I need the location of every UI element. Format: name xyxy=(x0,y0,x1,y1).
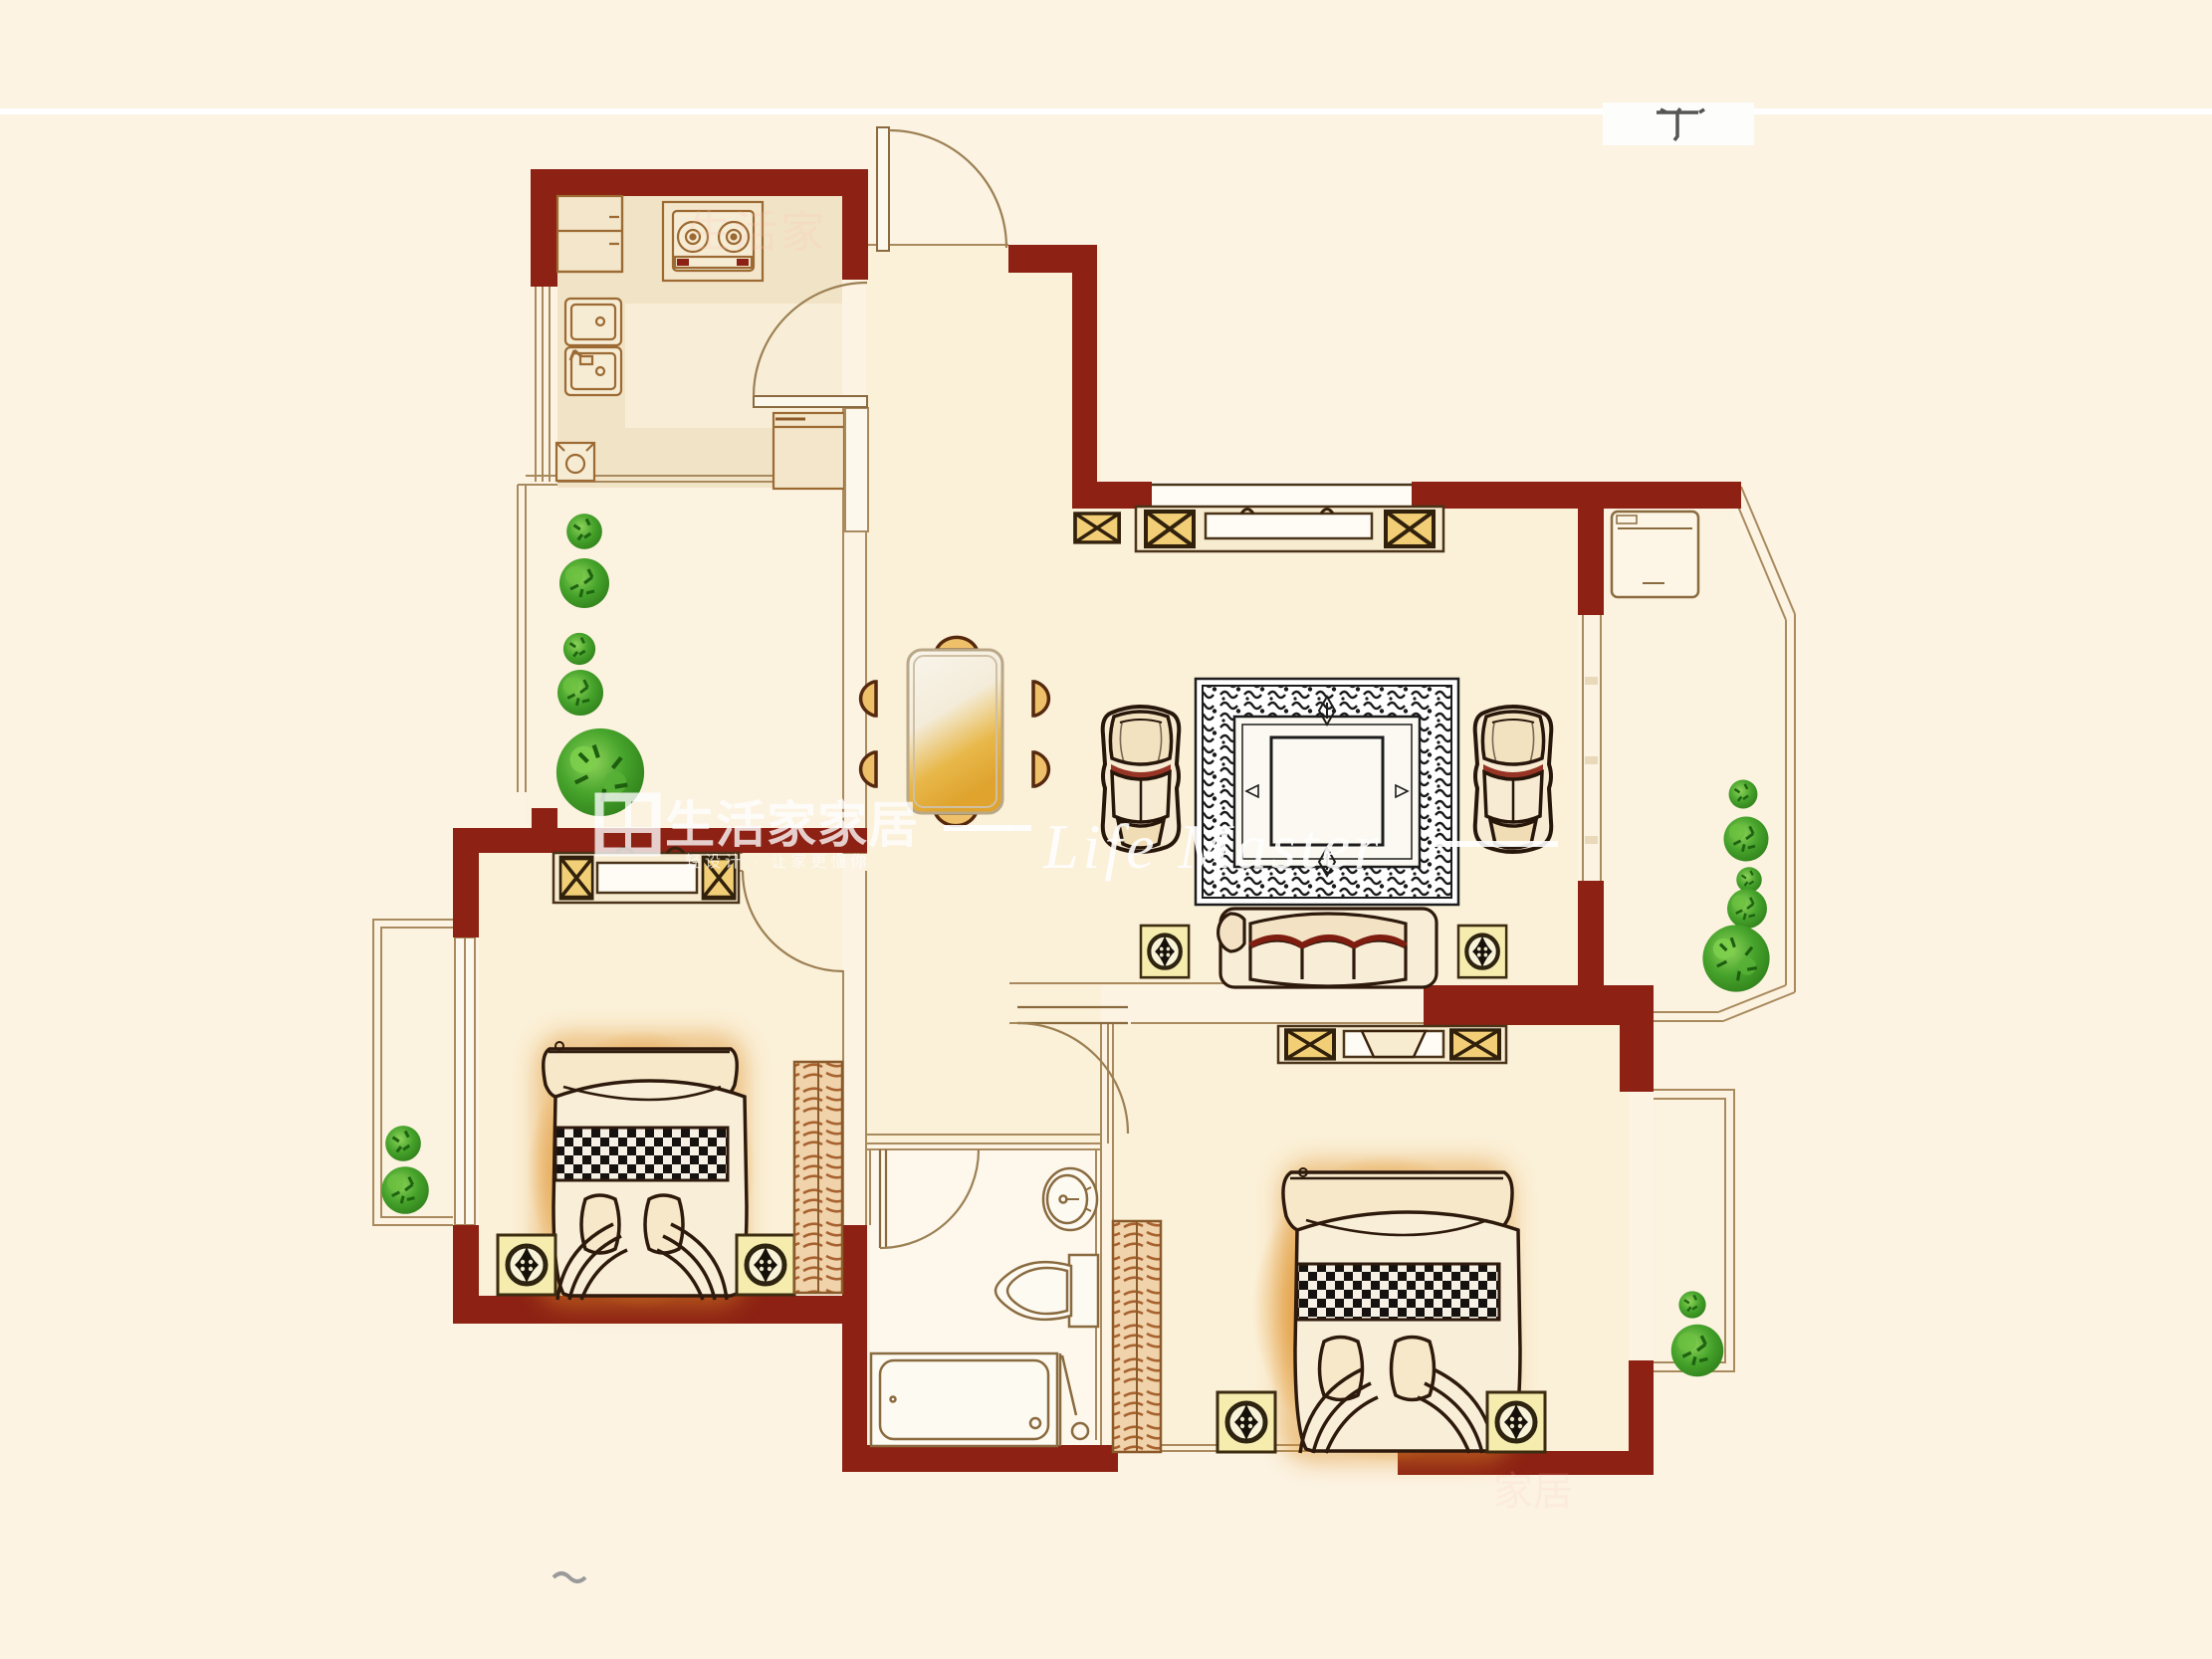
svg-text:生活家: 生活家 xyxy=(687,208,827,257)
svg-text:Life Master: Life Master xyxy=(1042,811,1383,882)
svg-text:轻设计 · 让家更懂你: 轻设计 · 让家更懂你 xyxy=(685,853,870,871)
svg-text:家居: 家居 xyxy=(1493,1470,1573,1514)
svg-text:生活家家居: 生活家家居 xyxy=(665,797,919,853)
